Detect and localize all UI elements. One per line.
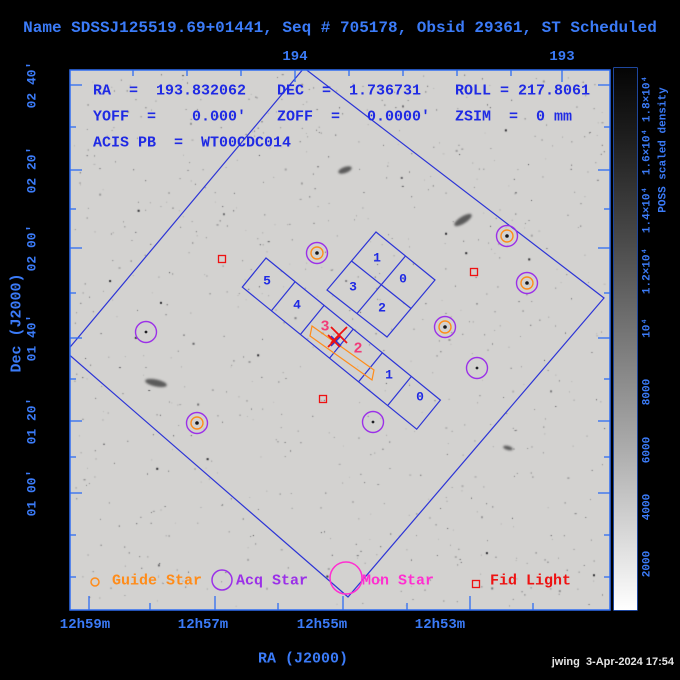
star-dot — [476, 367, 479, 370]
subarray-box — [310, 326, 374, 380]
acis-s-divider — [388, 376, 412, 405]
acis-i-divider — [352, 261, 412, 309]
fid-light-marker — [219, 256, 226, 263]
obsvis-window: { "title": "Name SDSSJ125519.69+01441, S… — [0, 0, 680, 680]
colorbar-gradient — [614, 68, 637, 610]
acis-s-divider — [300, 305, 324, 334]
acis-s-divider — [271, 282, 295, 311]
legend-fid-light-icon — [473, 581, 480, 588]
fid-light-marker — [320, 396, 327, 403]
star-dot — [525, 281, 529, 285]
legend-guide-star-icon — [91, 578, 99, 586]
plot-frame — [70, 70, 610, 610]
galaxy-blob — [145, 377, 168, 388]
fov-overlay-svg — [0, 0, 680, 680]
markers-layer — [136, 226, 538, 434]
galaxy-blob — [453, 212, 474, 229]
star-dot — [443, 325, 447, 329]
star-dot — [195, 421, 199, 425]
galaxy-blob — [337, 165, 352, 175]
star-dot — [505, 234, 509, 238]
axis-ticks — [70, 68, 637, 610]
galaxy-layer — [145, 165, 514, 451]
star-dot — [372, 421, 375, 424]
fid-light-marker — [471, 269, 478, 276]
galaxy-blob — [503, 445, 514, 451]
star-dot — [315, 251, 319, 255]
legend-mon-star-icon — [330, 562, 362, 594]
star-dot — [145, 331, 148, 334]
legend-glyphs — [91, 562, 480, 594]
legend-acq-star-icon — [212, 570, 232, 590]
